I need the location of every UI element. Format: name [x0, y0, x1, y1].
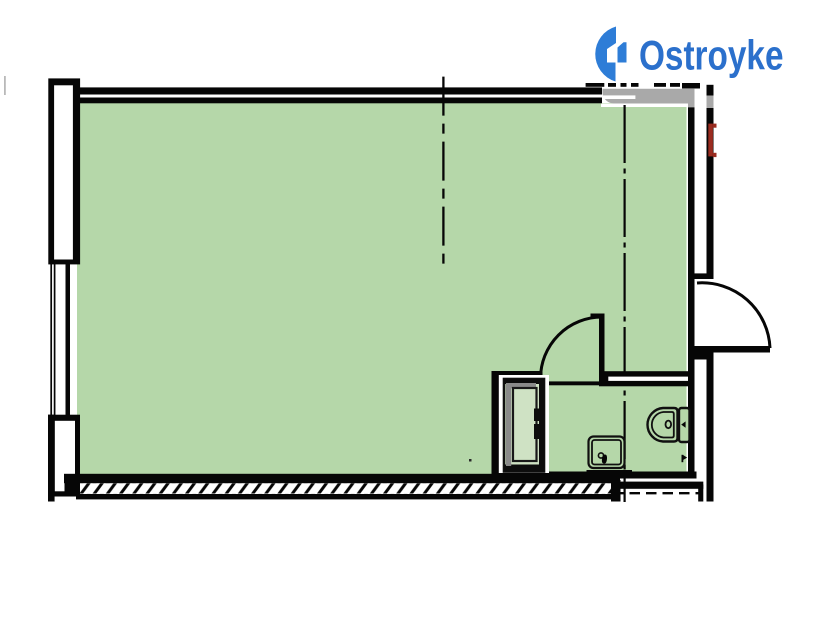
svg-text:Ostroyke: Ostroyke [639, 31, 784, 78]
